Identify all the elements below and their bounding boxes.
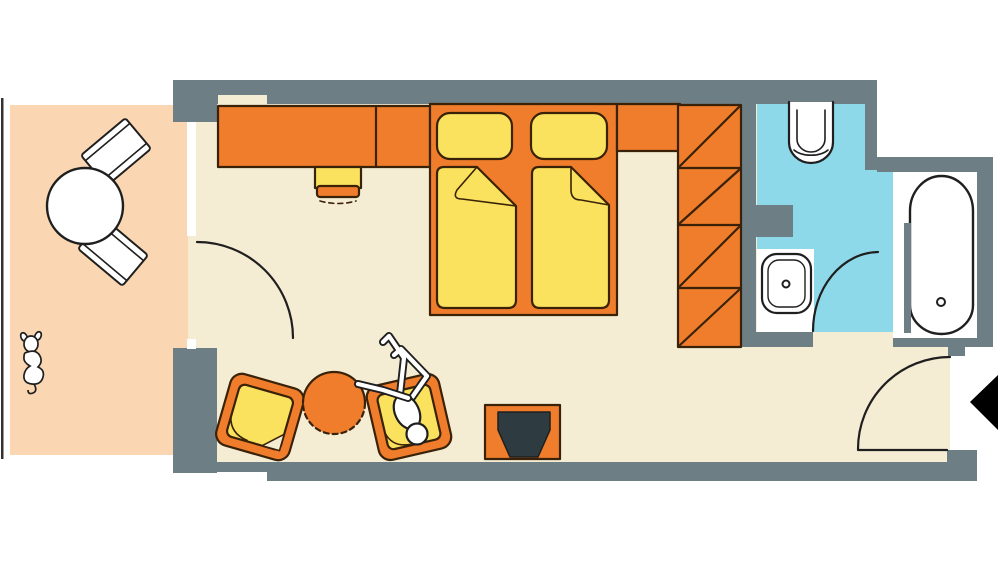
wall-bottom-thin (217, 462, 267, 472)
wall-balcony-upper (173, 104, 217, 122)
wall-entrance-jamb (947, 450, 977, 481)
wall-bathroom-step (865, 104, 877, 170)
desk-stool-back (317, 186, 359, 197)
washbasin (757, 249, 814, 332)
pillow-right (531, 113, 607, 159)
window-notch (218, 95, 267, 106)
wall-tub-bottom (893, 338, 977, 347)
floor-plan (0, 0, 1000, 563)
desk-stool (315, 167, 361, 188)
balcony-window (187, 122, 196, 236)
dog-body (24, 351, 44, 384)
bathtub (910, 176, 973, 334)
bathtub-drain (937, 298, 945, 306)
washbasin-drain (783, 281, 790, 288)
wall-tub-side (904, 223, 911, 333)
wall-bathroom-bottom (741, 332, 813, 347)
wall-bottom (267, 462, 947, 481)
bathtub-niche (893, 172, 977, 338)
wall-bathroom-stub (755, 205, 793, 237)
dog-head (24, 336, 38, 352)
wall-right (977, 172, 993, 347)
wall-top (173, 80, 877, 104)
balcony-window-lower (187, 339, 196, 349)
wall-balcony-lower (173, 348, 217, 473)
desk (218, 106, 430, 167)
floor-plan-drawing (0, 0, 1000, 563)
wardrobe (678, 105, 741, 347)
round-table (47, 168, 123, 244)
headboard-shelf (617, 104, 680, 151)
toilet (789, 102, 833, 163)
wall-entrance-stub (948, 347, 965, 356)
pillow-left (437, 113, 512, 159)
person-head (407, 424, 428, 445)
wall-bathroom-divider (741, 104, 756, 347)
wall-top-right (877, 157, 993, 172)
toilet-bowl (789, 102, 833, 163)
balcony-railing (1, 98, 4, 459)
